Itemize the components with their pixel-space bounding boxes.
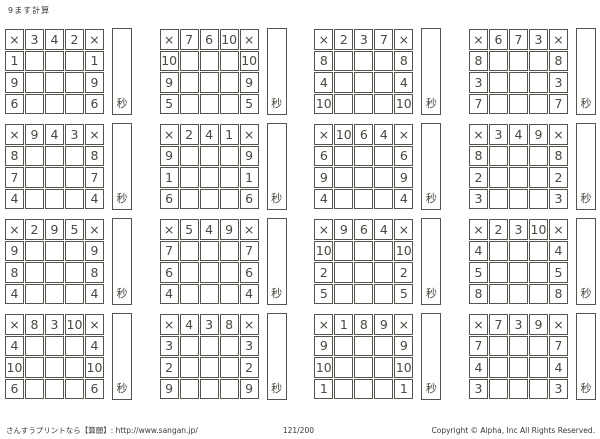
answer-cell [180, 72, 199, 93]
multiply-symbol: × [394, 219, 413, 240]
answer-cell [180, 284, 199, 305]
answer-cell [509, 284, 528, 305]
calc-table: × 2 4 1 × 9 9 1 1 6 [159, 123, 260, 210]
seconds-label: 秒 [426, 190, 437, 206]
answer-cell [220, 357, 239, 378]
calc-block: × 2 3 7 × 8 8 4 4 10 [313, 28, 441, 115]
answer-cell [509, 241, 528, 262]
seconds-box: 秒 [576, 218, 596, 305]
top-number: 2 [489, 219, 508, 240]
answer-cell [529, 379, 548, 400]
answer-cell [374, 51, 393, 72]
answer-cell [45, 94, 64, 115]
table-row: 2 2 [314, 262, 413, 283]
table-row: 10 10 [160, 51, 259, 72]
seconds-box: 秒 [576, 123, 596, 210]
calc-table: × 3 4 2 × 1 1 9 9 6 [4, 28, 105, 115]
multiply-symbol: × [160, 219, 179, 240]
row-number-left: 2 [160, 357, 179, 378]
calc-table: × 7 6 10 × 10 10 9 9 5 [159, 28, 260, 115]
footer-site-link: さんすうプリントなら【算願】: http://www.sangan.jp/ [6, 425, 283, 436]
top-number: 7 [374, 29, 393, 50]
header-row: × 6 7 3 × [469, 29, 568, 50]
row-number-right: 10 [394, 357, 413, 378]
seconds-box: 秒 [421, 218, 441, 305]
header-row: × 3 4 9 × [469, 124, 568, 145]
answer-cell [509, 72, 528, 93]
multiply-symbol: × [160, 29, 179, 50]
table-row: 5 5 [469, 262, 568, 283]
row-number-right: 10 [394, 94, 413, 115]
answer-cell [489, 167, 508, 188]
row-number-right: 4 [85, 284, 104, 305]
multiply-symbol: × [160, 314, 179, 335]
seconds-box: 秒 [112, 123, 132, 210]
row-number-right: 8 [549, 146, 568, 167]
row-number-right: 7 [549, 94, 568, 115]
answer-cell [334, 72, 353, 93]
answer-cell [374, 336, 393, 357]
answer-cell [65, 379, 84, 400]
answer-cell [529, 189, 548, 210]
answer-cell [220, 379, 239, 400]
row-number-left: 3 [469, 189, 488, 210]
top-number: 8 [220, 314, 239, 335]
row-number-left: 4 [314, 72, 333, 93]
calc-table: × 7 3 9 × 7 7 4 4 3 [468, 313, 569, 400]
answer-cell [220, 167, 239, 188]
table-row: 3 3 [469, 189, 568, 210]
row-number-right: 7 [240, 241, 259, 262]
top-number: 5 [180, 219, 199, 240]
row-number-right: 7 [549, 336, 568, 357]
seconds-label: 秒 [117, 95, 128, 111]
top-number: 10 [334, 124, 353, 145]
answer-cell [220, 94, 239, 115]
table-row: 7 7 [469, 94, 568, 115]
top-number: 3 [354, 29, 373, 50]
row-number-left: 1 [314, 379, 333, 400]
seconds-label: 秒 [271, 95, 282, 111]
answer-cell [45, 146, 64, 167]
answer-cell [529, 241, 548, 262]
table-row: 5 5 [160, 94, 259, 115]
table-row: 6 6 [5, 379, 104, 400]
answer-cell [200, 284, 219, 305]
table-row: 10 10 [314, 241, 413, 262]
answer-cell [529, 94, 548, 115]
answer-cell [334, 262, 353, 283]
calc-table: × 5 4 9 × 7 7 6 6 4 [159, 218, 260, 305]
seconds-label: 秒 [426, 380, 437, 396]
answer-cell [489, 72, 508, 93]
row-number-left: 7 [5, 167, 24, 188]
row-number-right: 1 [240, 167, 259, 188]
table-row: 4 4 [5, 336, 104, 357]
seconds-box: 秒 [112, 313, 132, 400]
row-number-right: 3 [549, 72, 568, 93]
multiply-symbol: × [314, 219, 333, 240]
row-number-right: 3 [549, 189, 568, 210]
answer-cell [220, 189, 239, 210]
top-number: 3 [200, 314, 219, 335]
seconds-label: 秒 [580, 380, 591, 396]
answer-cell [180, 262, 199, 283]
answer-cell [25, 72, 44, 93]
top-number: 3 [65, 124, 84, 145]
answer-cell [45, 72, 64, 93]
row-number-left: 4 [5, 189, 24, 210]
table-row: 3 3 [469, 379, 568, 400]
seconds-box: 秒 [421, 313, 441, 400]
row-number-left: 6 [160, 262, 179, 283]
calc-block: × 2 4 1 × 9 9 1 1 6 [159, 123, 287, 210]
answer-cell [334, 189, 353, 210]
table-row: 4 4 [314, 72, 413, 93]
answer-cell [334, 167, 353, 188]
calc-block: × 7 3 9 × 7 7 4 4 3 [468, 313, 596, 400]
answer-cell [489, 379, 508, 400]
row-number-left: 6 [314, 146, 333, 167]
multiply-symbol: × [469, 29, 488, 50]
row-number-right: 4 [240, 284, 259, 305]
row-number-right: 6 [240, 262, 259, 283]
table-row: 10 10 [314, 357, 413, 378]
answer-cell [354, 336, 373, 357]
row-number-right: 7 [85, 167, 104, 188]
row-number-right: 8 [549, 51, 568, 72]
row-number-left: 1 [5, 51, 24, 72]
top-number: 7 [489, 314, 508, 335]
multiply-symbol: × [5, 219, 24, 240]
answer-cell [354, 189, 373, 210]
table-row: 9 9 [160, 72, 259, 93]
multiply-symbol: × [85, 219, 104, 240]
table-row: 9 9 [160, 379, 259, 400]
header-row: × 2 3 10 × [469, 219, 568, 240]
answer-cell [65, 336, 84, 357]
row-number-left: 8 [469, 146, 488, 167]
row-number-right: 4 [549, 241, 568, 262]
top-number: 1 [220, 124, 239, 145]
answer-cell [489, 241, 508, 262]
answer-cell [180, 379, 199, 400]
row-number-left: 9 [160, 72, 179, 93]
row-number-left: 10 [314, 357, 333, 378]
answer-cell [374, 241, 393, 262]
seconds-box: 秒 [267, 28, 287, 115]
answer-cell [529, 284, 548, 305]
row-number-right: 9 [240, 72, 259, 93]
answer-cell [45, 379, 64, 400]
multiply-symbol: × [5, 314, 24, 335]
answer-cell [374, 189, 393, 210]
answer-cell [25, 189, 44, 210]
row-number-right: 4 [85, 336, 104, 357]
seconds-box: 秒 [112, 218, 132, 305]
row-number-right: 9 [394, 167, 413, 188]
table-row: 10 10 [5, 357, 104, 378]
header-row: × 8 3 10 × [5, 314, 104, 335]
table-row: 2 2 [469, 167, 568, 188]
row-number-right: 5 [394, 284, 413, 305]
row-number-left: 6 [5, 379, 24, 400]
footer-page-number: 121/200 [283, 426, 418, 435]
answer-cell [374, 262, 393, 283]
row-number-right: 6 [85, 379, 104, 400]
multiply-symbol: × [240, 219, 259, 240]
top-number: 2 [65, 29, 84, 50]
answer-cell [489, 336, 508, 357]
answer-cell [529, 72, 548, 93]
answer-cell [354, 357, 373, 378]
seconds-label: 秒 [580, 95, 591, 111]
seconds-label: 秒 [580, 285, 591, 301]
row-number-left: 7 [469, 94, 488, 115]
answer-cell [65, 262, 84, 283]
multiply-symbol: × [240, 29, 259, 50]
multiply-symbol: × [314, 124, 333, 145]
answer-cell [334, 94, 353, 115]
row-number-left: 8 [5, 262, 24, 283]
row-number-left: 4 [469, 241, 488, 262]
top-number: 4 [45, 29, 64, 50]
answer-cell [334, 357, 353, 378]
answer-cell [354, 284, 373, 305]
seconds-box: 秒 [576, 28, 596, 115]
calc-block: × 4 3 8 × 3 3 2 2 9 [159, 313, 287, 400]
header-row: × 2 3 7 × [314, 29, 413, 50]
answer-cell [180, 167, 199, 188]
row-number-right: 6 [240, 189, 259, 210]
seconds-box: 秒 [421, 123, 441, 210]
worksheet-grid-area: × 3 4 2 × 1 1 9 9 6 [4, 28, 596, 400]
top-number: 6 [354, 124, 373, 145]
calc-table: × 9 6 4 × 10 10 2 2 5 [313, 218, 414, 305]
top-number: 3 [509, 314, 528, 335]
table-row: 3 3 [469, 72, 568, 93]
row-number-right: 3 [549, 379, 568, 400]
answer-cell [220, 146, 239, 167]
answer-cell [65, 357, 84, 378]
calc-table: × 2 9 5 × 9 9 8 8 4 [4, 218, 105, 305]
footer: さんすうプリントなら【算願】: http://www.sangan.jp/ 12… [6, 425, 595, 436]
answer-cell [65, 146, 84, 167]
table-row: 9 9 [5, 241, 104, 262]
calc-block: × 9 6 4 × 10 10 2 2 5 [313, 218, 441, 305]
multiply-symbol: × [240, 124, 259, 145]
answer-cell [65, 51, 84, 72]
top-number: 4 [374, 124, 393, 145]
answer-cell [354, 167, 373, 188]
top-number: 8 [354, 314, 373, 335]
multiply-symbol: × [469, 314, 488, 335]
calc-block: × 10 6 4 × 6 6 9 9 4 [313, 123, 441, 210]
table-row: 1 1 [160, 167, 259, 188]
seconds-label: 秒 [426, 285, 437, 301]
row-number-right: 4 [549, 357, 568, 378]
table-row: 4 4 [314, 189, 413, 210]
answer-cell [374, 379, 393, 400]
multiply-symbol: × [549, 124, 568, 145]
row-number-left: 10 [160, 51, 179, 72]
row-number-right: 4 [394, 72, 413, 93]
table-row: 10 10 [314, 94, 413, 115]
row-number-left: 2 [314, 262, 333, 283]
row-number-left: 9 [160, 146, 179, 167]
header-row: × 9 4 3 × [5, 124, 104, 145]
row-number-left: 3 [469, 379, 488, 400]
seconds-box: 秒 [421, 28, 441, 115]
row-number-right: 3 [240, 336, 259, 357]
footer-copyright: Copyright © Alpha, Inc All Rights Reserv… [418, 426, 595, 435]
calc-block: × 3 4 2 × 1 1 9 9 6 [4, 28, 132, 115]
top-number: 8 [25, 314, 44, 335]
seconds-box: 秒 [112, 28, 132, 115]
answer-cell [334, 336, 353, 357]
answer-cell [180, 357, 199, 378]
table-row: 8 8 [469, 146, 568, 167]
multiply-symbol: × [549, 219, 568, 240]
answer-cell [489, 284, 508, 305]
answer-cell [180, 146, 199, 167]
row-number-left: 10 [314, 94, 333, 115]
row-number-right: 2 [394, 262, 413, 283]
row-number-left: 4 [5, 336, 24, 357]
answer-cell [25, 241, 44, 262]
calc-block: × 2 3 10 × 4 4 5 5 8 [468, 218, 596, 305]
answer-cell [200, 167, 219, 188]
answer-cell [220, 262, 239, 283]
row-number-left: 10 [314, 241, 333, 262]
top-number: 3 [529, 29, 548, 50]
top-number: 9 [529, 124, 548, 145]
answer-cell [220, 284, 239, 305]
multiply-symbol: × [394, 314, 413, 335]
answer-cell [45, 189, 64, 210]
table-row: 9 9 [160, 146, 259, 167]
seconds-box: 秒 [267, 123, 287, 210]
row-number-right: 1 [394, 379, 413, 400]
top-number: 9 [374, 314, 393, 335]
answer-cell [334, 146, 353, 167]
answer-cell [45, 357, 64, 378]
seconds-label: 秒 [117, 380, 128, 396]
row-number-left: 5 [160, 94, 179, 115]
top-number: 2 [180, 124, 199, 145]
header-row: × 1 8 9 × [314, 314, 413, 335]
multiply-symbol: × [85, 314, 104, 335]
table-row: 4 4 [5, 284, 104, 305]
answer-cell [374, 167, 393, 188]
answer-cell [354, 379, 373, 400]
answer-cell [509, 357, 528, 378]
row-number-right: 10 [85, 357, 104, 378]
table-row: 8 8 [5, 262, 104, 283]
answer-cell [180, 241, 199, 262]
answer-cell [200, 72, 219, 93]
row-number-right: 2 [549, 167, 568, 188]
calc-block: × 2 9 5 × 9 9 8 8 4 [4, 218, 132, 305]
seconds-label: 秒 [426, 95, 437, 111]
answer-cell [25, 262, 44, 283]
multiply-symbol: × [549, 314, 568, 335]
answer-cell [25, 336, 44, 357]
answer-cell [45, 167, 64, 188]
top-number: 9 [529, 314, 548, 335]
answer-cell [509, 94, 528, 115]
multiply-symbol: × [469, 124, 488, 145]
header-row: × 3 4 2 × [5, 29, 104, 50]
row-number-right: 5 [240, 94, 259, 115]
answer-cell [25, 284, 44, 305]
seconds-label: 秒 [271, 285, 282, 301]
calc-block: × 7 6 10 × 10 10 9 9 5 [159, 28, 287, 115]
answer-cell [354, 72, 373, 93]
row-number-left: 9 [5, 241, 24, 262]
top-number: 9 [334, 219, 353, 240]
answer-cell [509, 379, 528, 400]
answer-cell [65, 94, 84, 115]
calc-table: × 1 8 9 × 9 9 10 10 1 [313, 313, 414, 400]
row-number-left: 5 [314, 284, 333, 305]
answer-cell [25, 51, 44, 72]
row-number-right: 6 [394, 146, 413, 167]
answer-cell [220, 72, 239, 93]
table-row: 8 8 [314, 51, 413, 72]
answer-cell [529, 51, 548, 72]
seconds-label: 秒 [271, 190, 282, 206]
seconds-label: 秒 [271, 380, 282, 396]
row-number-right: 5 [549, 262, 568, 283]
row-number-right: 8 [549, 284, 568, 305]
top-number: 1 [334, 314, 353, 335]
row-number-left: 9 [314, 336, 333, 357]
top-number: 7 [509, 29, 528, 50]
multiply-symbol: × [314, 314, 333, 335]
answer-cell [180, 94, 199, 115]
top-number: 3 [509, 219, 528, 240]
multiply-symbol: × [314, 29, 333, 50]
calc-block: × 8 3 10 × 4 4 10 10 6 [4, 313, 132, 400]
answer-cell [509, 262, 528, 283]
answer-cell [354, 51, 373, 72]
row-number-left: 4 [5, 284, 24, 305]
answer-cell [354, 241, 373, 262]
answer-cell [509, 336, 528, 357]
row-number-right: 4 [394, 189, 413, 210]
table-row: 7 7 [5, 167, 104, 188]
answer-cell [45, 336, 64, 357]
seconds-label: 秒 [117, 190, 128, 206]
row-number-left: 4 [314, 189, 333, 210]
table-row: 1 1 [314, 379, 413, 400]
header-row: × 7 6 10 × [160, 29, 259, 50]
row-number-right: 9 [394, 336, 413, 357]
answer-cell [180, 51, 199, 72]
table-row: 5 5 [314, 284, 413, 305]
row-number-left: 8 [314, 51, 333, 72]
answer-cell [45, 51, 64, 72]
seconds-box: 秒 [267, 313, 287, 400]
answer-cell [374, 357, 393, 378]
calc-table: × 2 3 7 × 8 8 4 4 10 [313, 28, 414, 115]
top-number: 6 [489, 29, 508, 50]
top-number: 9 [25, 124, 44, 145]
row-number-left: 7 [160, 241, 179, 262]
answer-cell [334, 241, 353, 262]
answer-cell [45, 262, 64, 283]
